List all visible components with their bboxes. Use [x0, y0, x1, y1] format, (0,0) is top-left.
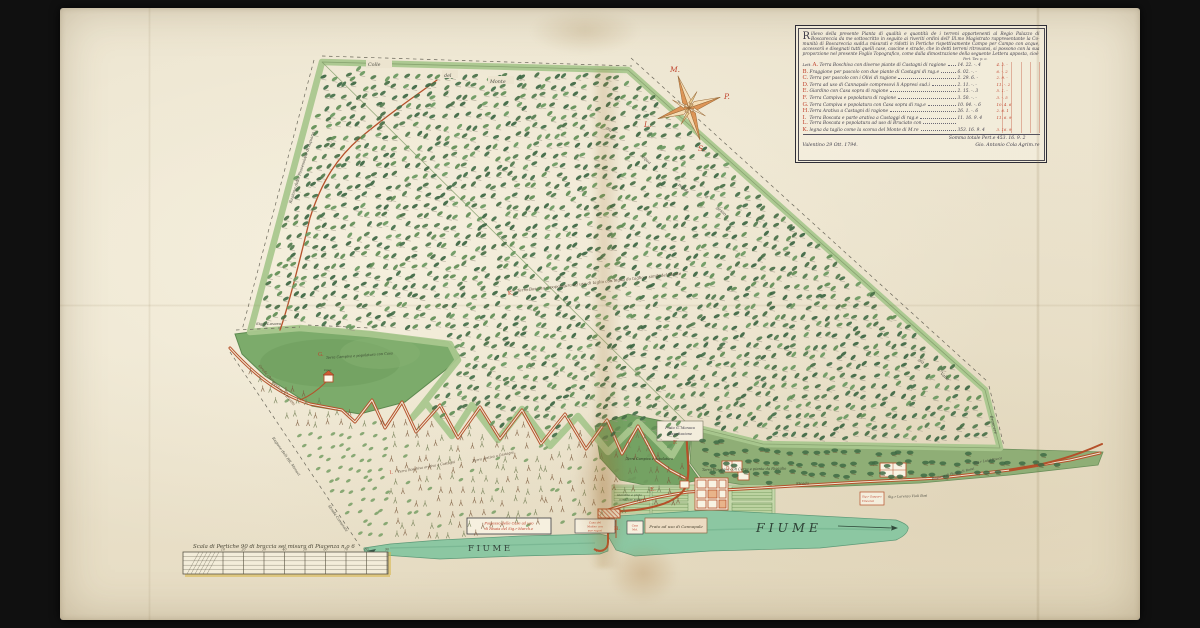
prato-casa-line-1: Prato G. Monaca [664, 426, 695, 430]
boundary-bottom-label-2: Strada Comunale [327, 504, 348, 532]
compass-south-label: S. [698, 144, 705, 153]
patch-letter: G. [318, 352, 324, 358]
compass-north-label: M. [669, 65, 680, 74]
svg-text:già: già [917, 357, 926, 365]
bridge-label: Pon. [595, 549, 604, 553]
svg-text:50: 50 [303, 548, 307, 552]
possesso-box-line-2: di Risaia del Sig.r March.e [485, 527, 534, 531]
field-label-1: Giardino e prato [617, 493, 642, 497]
darkzone-letter: F. [673, 440, 678, 446]
legend-cartouche: Rilievo della presente Pianta di qualità… [795, 25, 1047, 163]
river-right-label: F I U M E [755, 520, 818, 535]
owner-box-line-2: Vincenzi [862, 499, 874, 503]
legend-signature: Gio. Antonio Cola Agrim.re [975, 143, 1039, 148]
boundary-bottom-label-1: Ragione delli RR. Monaci [271, 435, 301, 476]
svg-text:40: 40 [281, 548, 286, 552]
svg-text:acqua: acqua [639, 153, 652, 165]
bridge-letter: H. [614, 526, 620, 532]
svg-text:Colle: Colle [368, 62, 381, 68]
building-letter: D. [726, 467, 731, 472]
scale-bar: Scala di Pertiche 90 di braccia sei misu… [183, 544, 390, 576]
field-letter: E. [650, 487, 656, 493]
orchard-letter: I. [389, 469, 394, 476]
possesso-box-line-1: Possesso delle Case ad uso [483, 522, 534, 526]
right-building [880, 463, 906, 477]
casello-box-line-1: Casa [632, 524, 639, 528]
casello-box-line-2: Mol. [631, 528, 638, 532]
prato-box-label: Prato ad uso di Cannapale [648, 524, 703, 529]
label-box-casello [627, 521, 643, 534]
legend-paragraph: Rilievo della presente Pianta di qualità… [803, 32, 1040, 58]
parchment-sheet: M. P. L. S. Colle del Monte già acqua pe… [60, 8, 1140, 620]
forest-letter: K. [508, 290, 515, 297]
svg-text:80: 80 [364, 548, 368, 552]
svg-text:20: 20 [240, 548, 245, 552]
svg-text:10: 10 [221, 548, 225, 552]
patch-casa-label: Casa [324, 368, 332, 372]
forest-label: Terra Boscata e popolatura ad uso di tag… [517, 271, 683, 293]
legend-totals: Somma totale Pert.e 453. 16. 9. 2 [803, 134, 1040, 141]
svg-text:già: già [605, 125, 614, 133]
compass-rose: M. P. L. S. [643, 65, 731, 153]
svg-text:Monte: Monte [489, 79, 506, 85]
svg-text:90: 90 [385, 548, 389, 552]
photographed-manuscript-map: M. P. L. S. Colle del Monte già acqua pe… [0, 0, 1200, 628]
darkzone-label: Terra Campiva e popolatura [626, 457, 673, 461]
compass-west-label: L. [643, 120, 651, 129]
boundary-right-label: Brancere [989, 414, 999, 435]
prato-casa-line-2: Rispettazione [667, 432, 692, 436]
legend-initial: R [803, 32, 811, 41]
svg-text:60: 60 [323, 548, 327, 552]
orchard-label-1: Terra Boschiva arativa a Castagni [397, 460, 455, 474]
patch-owner-label: Sig.r Lovara [256, 321, 282, 326]
strada-label: Strada [796, 481, 810, 486]
svg-text:Valle: Valle [939, 371, 950, 382]
label-box-possesso [467, 518, 551, 534]
owner-box-line-1: Sig.r Gasparo [862, 495, 882, 499]
legend-rows: Lett.A.Terra Boschiva con diverse piante… [803, 62, 1040, 133]
legend-date: Valentino 29 Ott. 1794. [803, 143, 858, 148]
field-label-2: con Case sopra [619, 498, 642, 502]
molino-box-line-3: sue rag.ni [588, 529, 602, 533]
legend-inner-frame: Rilievo della presente Pianta di qualità… [798, 28, 1045, 161]
right-label-3: Sig.r Lorenzo Violi Bosi [888, 494, 927, 499]
svg-text:70: 70 [344, 548, 348, 552]
compass-east-label: P. [723, 92, 730, 101]
scale-bar-title: Scala di Pertiche 90 di braccia sei misu… [193, 544, 355, 550]
orchard-label-2: Terra arativa a Castagni [472, 450, 514, 463]
svg-text:30: 30 [262, 548, 266, 552]
river-left-label: F I U M E [468, 544, 510, 554]
label-box-prato-casa [657, 421, 703, 441]
svg-text:del: del [444, 73, 452, 79]
